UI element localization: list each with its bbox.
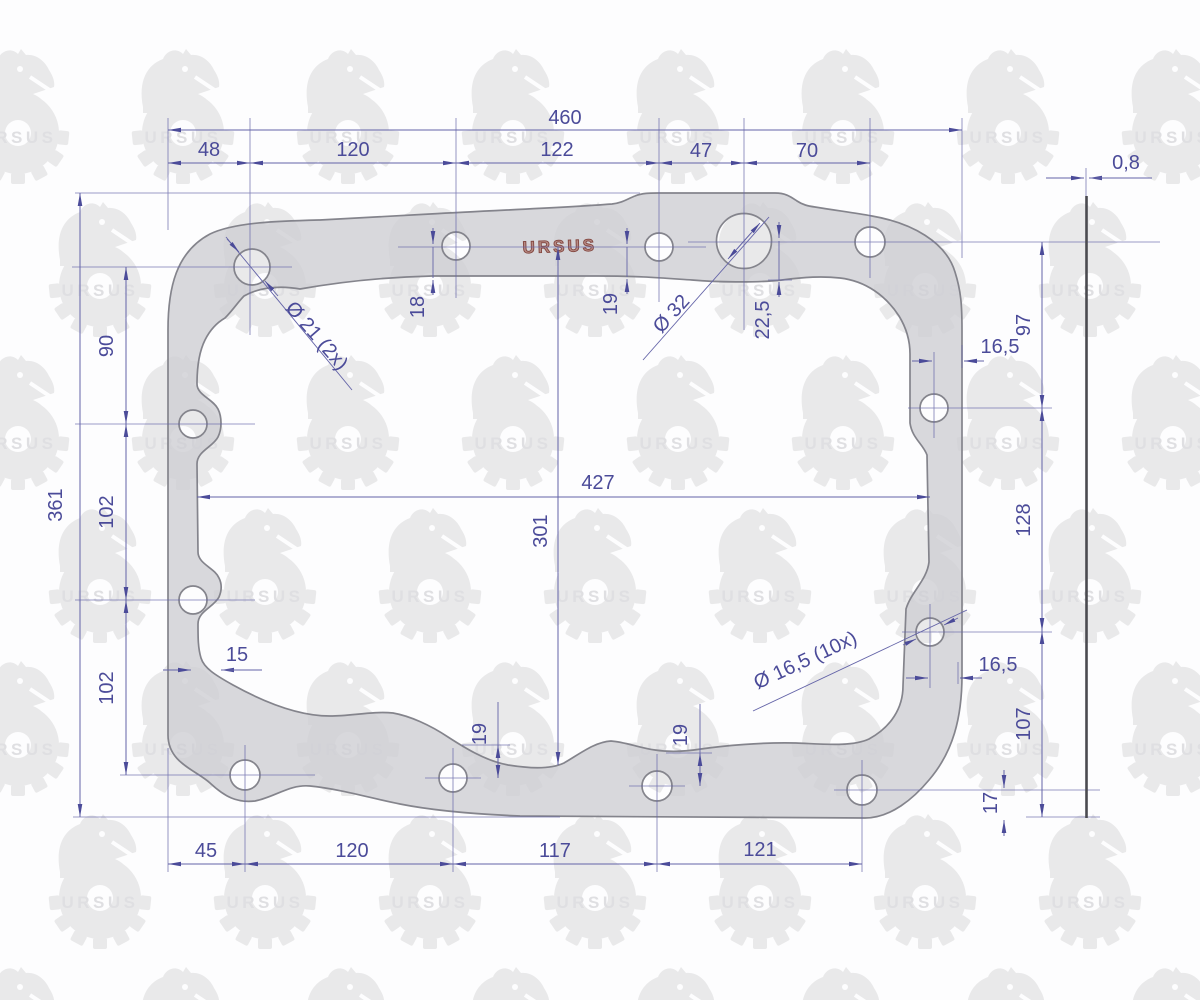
dim-top-seg-5: 70	[796, 140, 818, 162]
dim-right-seg-3: 107	[1013, 707, 1035, 740]
dim-inner-width: 427	[581, 472, 614, 494]
dim-inner-height: 301	[530, 514, 552, 547]
dim-left-seg-3: 102	[96, 671, 118, 704]
dim-bottom-seg-1: 45	[195, 840, 217, 862]
dim-bottom-hole-offset-19b: 19	[670, 724, 692, 746]
dim-right-corner: 17	[980, 792, 1002, 814]
dim-left-seg-1: 90	[96, 335, 118, 357]
dim-right-offset-top: 16,5	[981, 336, 1020, 358]
dim-right-offset-bottom: 16,5	[979, 654, 1018, 676]
dim-top-seg-3: 122	[540, 139, 573, 161]
dim-left-seg-2: 102	[96, 495, 118, 528]
dim-bottom-seg-2: 120	[335, 840, 368, 862]
dim-overall-width: 460	[548, 107, 581, 129]
dim-bottom-seg-3: 117	[539, 840, 571, 862]
dim-left-offset-15: 15	[226, 644, 248, 666]
drawing-page: URSUS URSUS	[0, 0, 1200, 1000]
dim-top-seg-1: 48	[198, 139, 220, 161]
dim-overall-height: 361	[45, 488, 67, 521]
dim-bottom-hole-offset-19a: 19	[469, 723, 491, 745]
dim-bottom-seg-4: 121	[743, 839, 776, 861]
dim-thickness: 0,8	[1112, 152, 1140, 174]
dim-right-seg-2: 128	[1013, 503, 1035, 536]
dim-hole-offset-18: 18	[407, 296, 429, 318]
dim-top-seg-2: 120	[336, 139, 369, 161]
gasket-brand-logo: URSUS	[522, 236, 597, 258]
gasket-technical-drawing: URSUS URSUS	[0, 0, 1200, 1000]
dim-top-seg-4: 47	[690, 140, 712, 162]
dim-right-seg-1: 97	[1013, 314, 1035, 336]
dim-hole-offset-19-top: 19	[600, 293, 622, 315]
dim-hole-offset-22-5: 22,5	[752, 301, 774, 340]
